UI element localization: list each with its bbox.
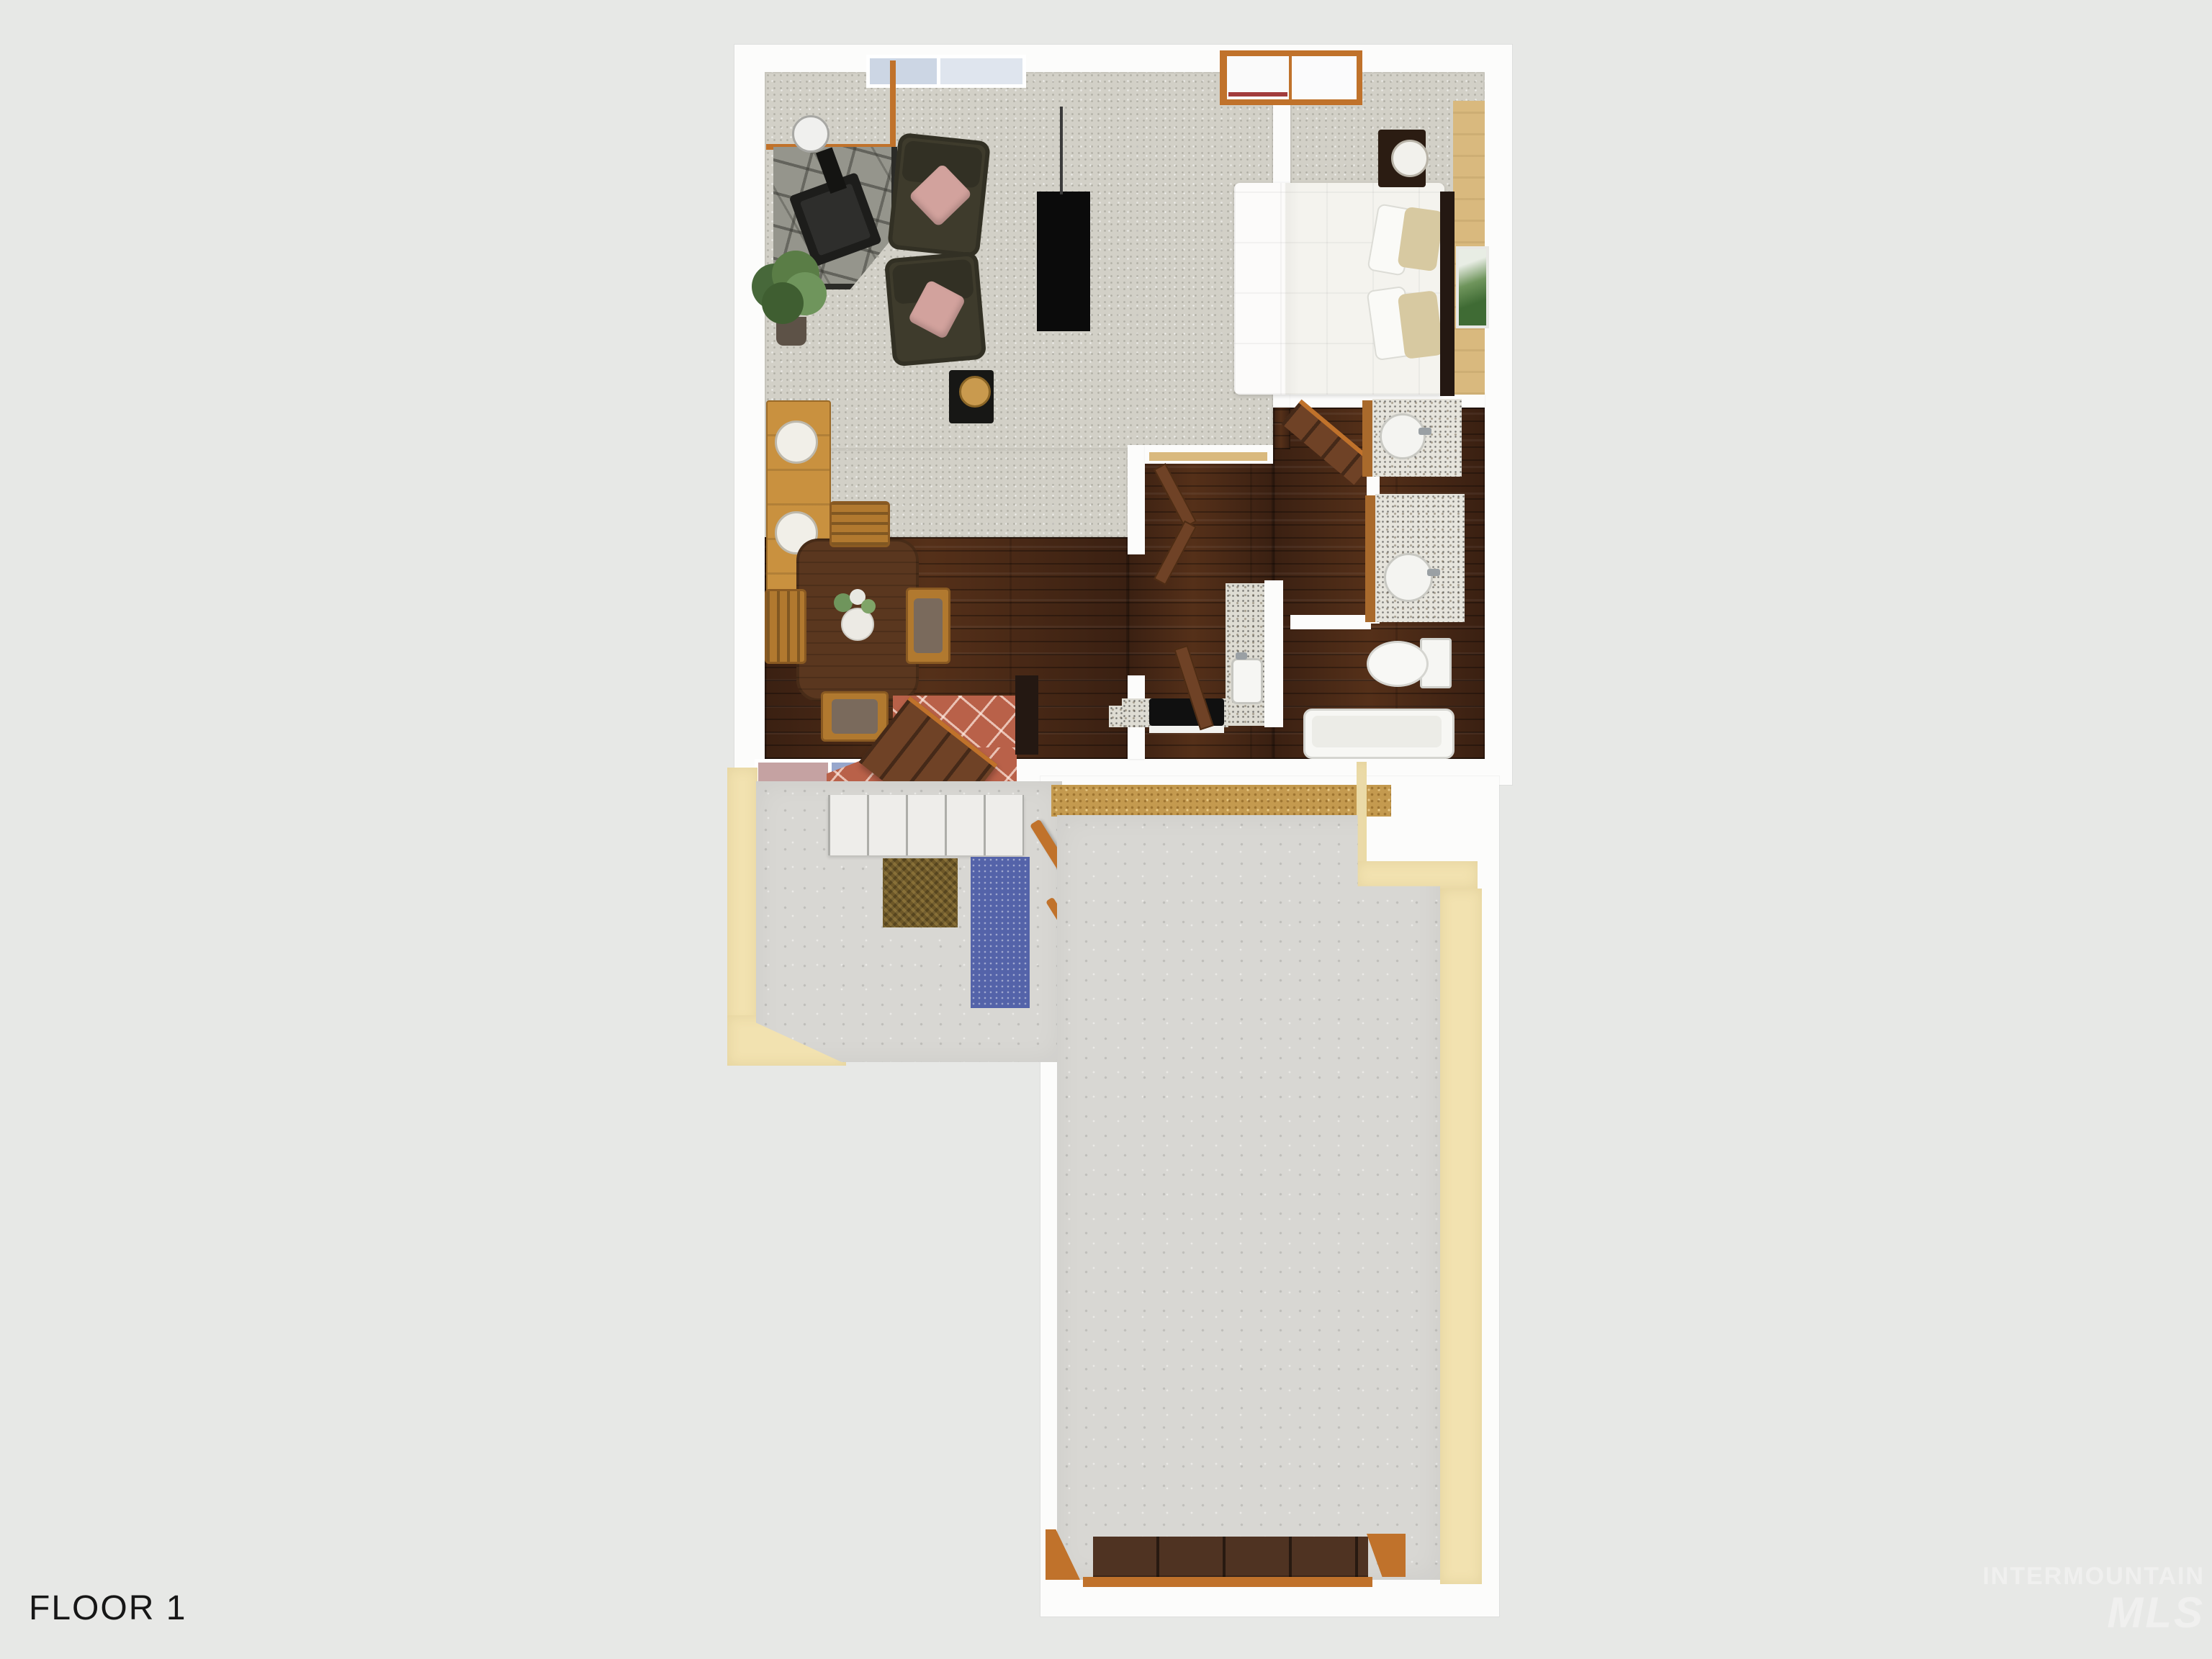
floorplan-3d-render: FLOOR 1 INTERMOUNTAIN MLS (0, 0, 2212, 1659)
front-steps (828, 795, 1024, 855)
chair-cushion-2 (832, 699, 878, 734)
garage-east-wall (1440, 889, 1482, 1584)
toilet (1367, 635, 1450, 687)
vanity-faucet (1419, 428, 1431, 435)
door-mat (883, 858, 958, 927)
mls-watermark: INTERMOUNTAIN MLS (1764, 1564, 2205, 1635)
armchair-2 (884, 251, 987, 367)
wall-art-leaf (1456, 246, 1489, 328)
dining-chair-west (765, 589, 806, 664)
entry-cabinet (1015, 675, 1038, 755)
dining-chair-east (906, 588, 950, 664)
wc-wall (1290, 615, 1371, 629)
vanity-2-sink (1384, 553, 1433, 602)
console-lamp (775, 421, 818, 464)
toilet-bowl (1367, 641, 1429, 687)
hall-closet-shelf (1149, 452, 1267, 461)
kitchen-back-wall (1264, 580, 1283, 727)
bed-pillow-tan-2 (1398, 290, 1444, 359)
garage-door-trim (1083, 1577, 1372, 1587)
bedroom-window-pane-2 (1292, 56, 1357, 99)
runner-rug (971, 857, 1030, 1008)
flowers-3 (861, 599, 876, 613)
table-lamp-gold (959, 376, 991, 408)
hallway-wall-upper (1128, 445, 1145, 554)
bed-pillow-tan (1397, 207, 1444, 272)
dining-chair-south (821, 691, 889, 742)
porch-wall-west (727, 768, 757, 1024)
living-sliding-door-window (866, 55, 941, 88)
cooktop (1149, 698, 1224, 726)
garage-north-wall-cap (1051, 785, 1391, 817)
garage-floor (1057, 815, 1440, 1580)
floor-label: FLOOR 1 (29, 1588, 186, 1628)
watermark-line-mls: MLS (1764, 1591, 2205, 1635)
garage-door (1093, 1537, 1368, 1577)
range-front (1149, 726, 1224, 733)
plant-foliage-4 (762, 282, 804, 324)
living-sliding-door-window-2 (937, 55, 1026, 88)
nightstand-lamp (1391, 140, 1429, 177)
headboard (1440, 192, 1455, 396)
kitchen-faucet (1236, 652, 1247, 660)
armchair (887, 132, 991, 258)
kitchen-counter-stub (1109, 706, 1123, 727)
garage-notch-wall-2 (1357, 861, 1478, 889)
vanity-sink (1380, 413, 1426, 459)
stove-chimney-cap (792, 115, 829, 153)
watermark-line-intermountain: INTERMOUNTAIN (1764, 1564, 2205, 1588)
bathtub-basin (1312, 716, 1442, 747)
houseplant (752, 251, 827, 351)
bedroom-window-mullion (1228, 92, 1287, 96)
television (1037, 192, 1090, 331)
door-jamb-trim (890, 60, 896, 148)
kitchen-sink (1231, 658, 1263, 704)
bifold-leaf (1154, 463, 1197, 528)
dining-chair-north (829, 501, 890, 547)
vanity-2-faucet (1427, 569, 1440, 576)
tv-antenna (1060, 107, 1063, 194)
chair-cushion (914, 598, 943, 653)
bifold-closet-door (1151, 467, 1210, 573)
